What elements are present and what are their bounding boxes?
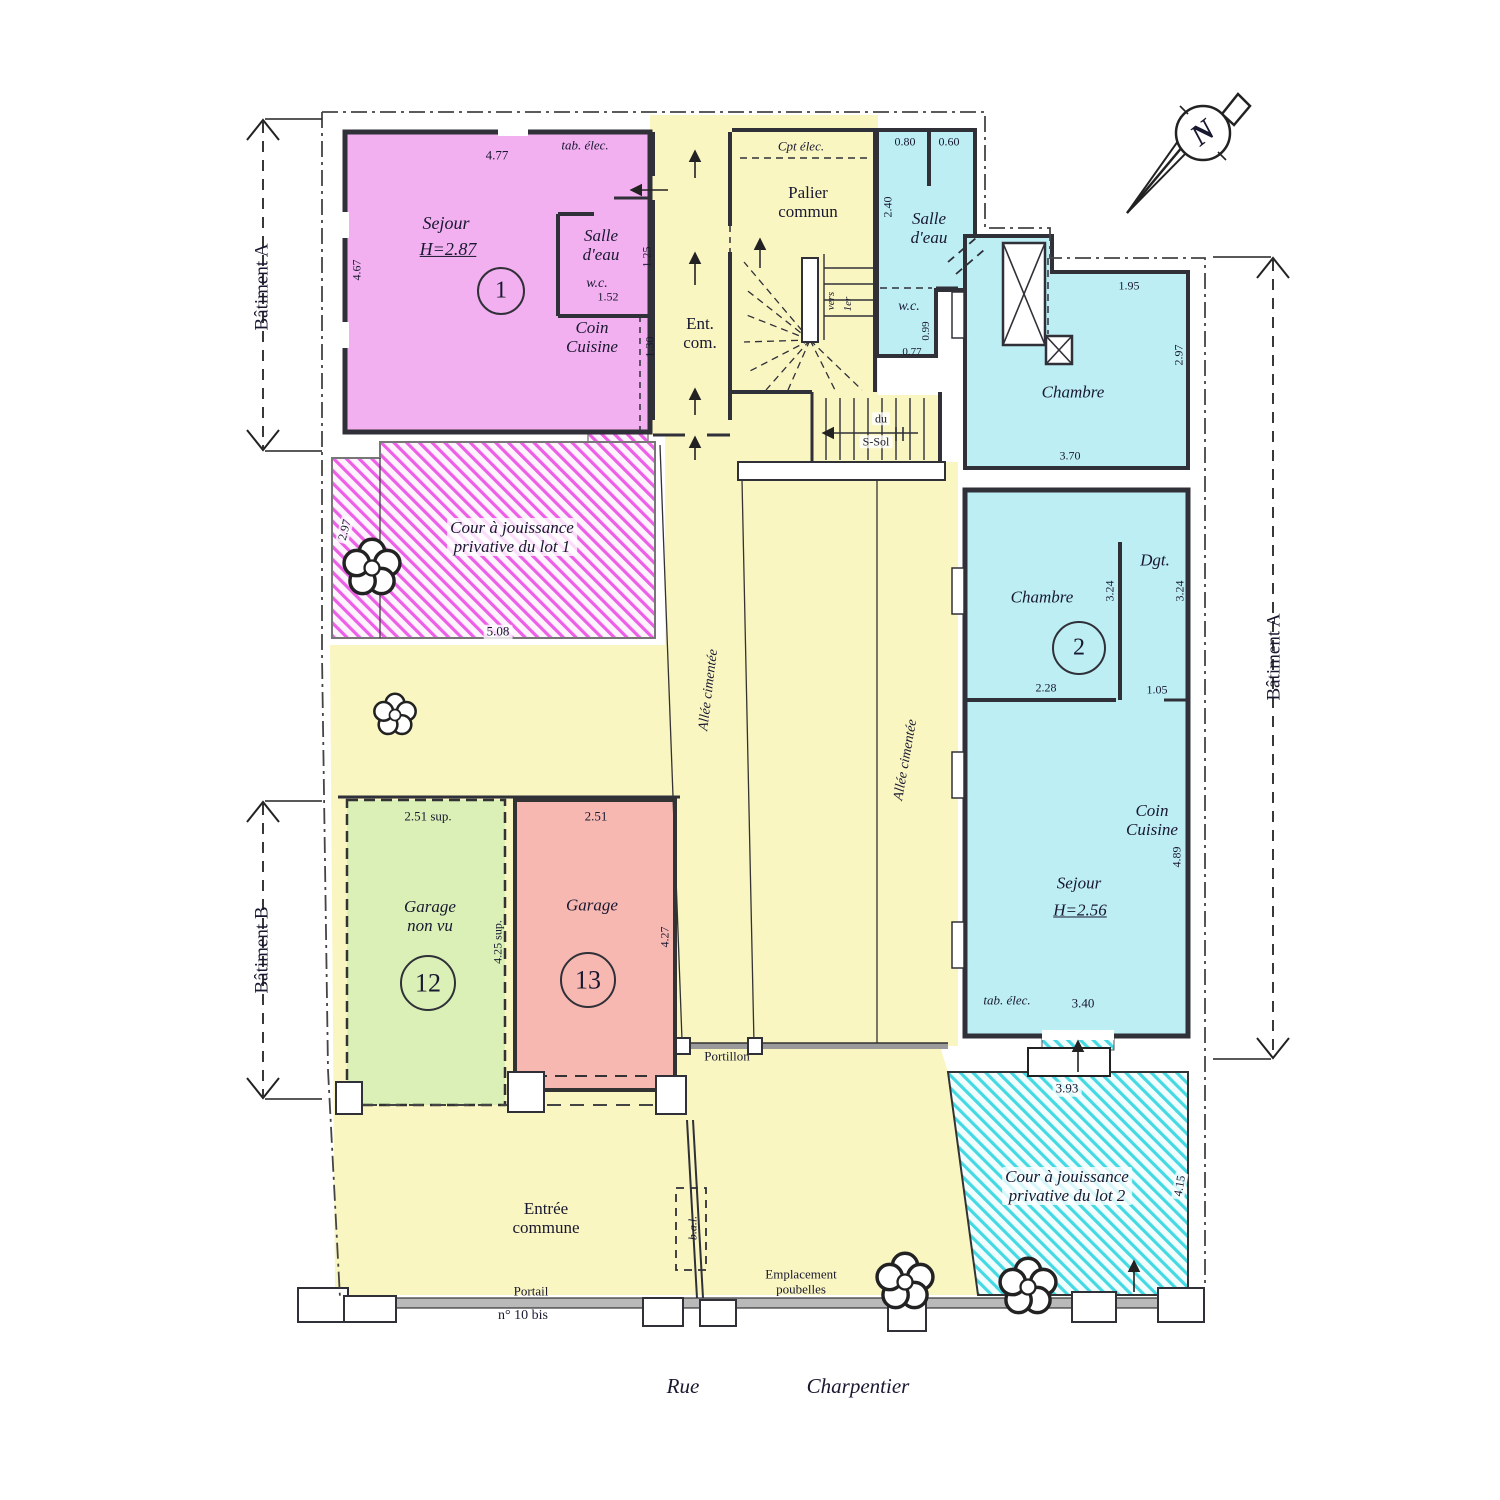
floor-plan-drawing bbox=[0, 0, 1500, 1500]
garage-12-shape bbox=[347, 800, 505, 1105]
batiment-b-left-arrow bbox=[247, 801, 322, 1099]
court-lot1-hatch bbox=[332, 432, 655, 638]
batiment-a-left-arrow bbox=[247, 119, 322, 451]
garage-13-shape bbox=[515, 800, 675, 1090]
court-lot2-hatch bbox=[948, 1034, 1188, 1295]
lot1-rooms bbox=[339, 124, 650, 432]
north-compass-icon bbox=[1127, 94, 1250, 213]
floor-plan-page: Bâtiment A Bâtiment B Bâtiment A tab. él… bbox=[0, 0, 1500, 1500]
batiment-a-right-arrow bbox=[1213, 257, 1289, 1059]
